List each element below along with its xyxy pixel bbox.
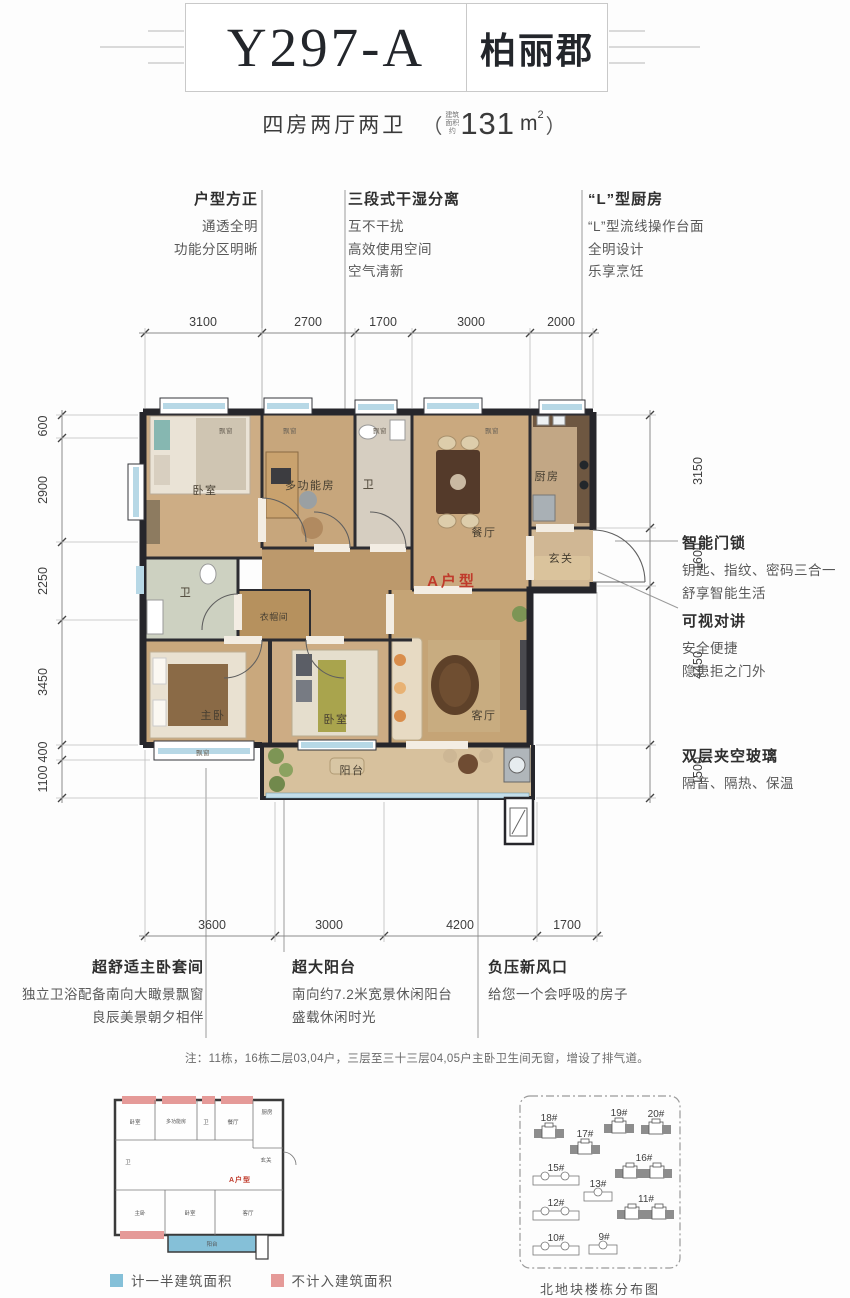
dim-top-1: 3100 xyxy=(189,315,217,329)
room-label-living: 客厅 xyxy=(472,708,497,722)
bay-window-label: 飘窗 xyxy=(219,426,233,435)
legend-swatch-pink xyxy=(271,1274,284,1287)
mini-label: 玄关 xyxy=(260,1156,272,1164)
feature-line: 盛载休闲时光 xyxy=(292,1007,477,1030)
dim-top-4: 3000 xyxy=(457,315,485,329)
feature-line: 全明设计 xyxy=(588,239,793,262)
feature-title: 可视对讲 xyxy=(682,610,850,631)
dim-bottom-3: 4200 xyxy=(446,918,474,932)
room-label-kitchen: 厨房 xyxy=(535,470,560,483)
mini-unit-tag: A户型 xyxy=(229,1175,251,1184)
dim-left-3: 2250 xyxy=(36,567,50,595)
feature-line: 空气清新 xyxy=(348,261,523,284)
utility-shaft xyxy=(505,798,533,844)
area-unit: m xyxy=(520,112,538,136)
building-label: 10# xyxy=(548,1233,565,1244)
feature-line: 安全便捷 xyxy=(682,638,850,661)
dim-left-4: 3450 xyxy=(36,668,50,696)
mini-baywindow-strip xyxy=(202,1096,215,1104)
feature-title: “L”型厨房 xyxy=(588,188,793,209)
dim-left-6: 1100 xyxy=(36,766,50,793)
mini-label: 卧室 xyxy=(184,1209,196,1217)
feature-line: 隐患拒之门外 xyxy=(682,661,850,684)
feature-title: 双层夹空玻璃 xyxy=(682,745,850,766)
layout-type: 四房两厅两卫 xyxy=(262,109,406,139)
building-label: 13# xyxy=(590,1179,607,1190)
mini-label: 卧室 xyxy=(129,1118,141,1126)
feature-title: 超舒适主卧套间 xyxy=(10,956,204,977)
legend-swatch-blue xyxy=(110,1274,123,1287)
room-label-bath-master: 卫 xyxy=(180,587,193,599)
unit-model-title: Y297-A xyxy=(186,4,466,91)
mini-label: 卫 xyxy=(203,1119,209,1126)
feature-line: 隔音、隔热、保温 xyxy=(682,773,850,796)
paren-close: ） xyxy=(546,110,566,139)
site-plan-caption: 北地块楼栋分布图 xyxy=(520,1279,680,1298)
dim-top-5: 2000 xyxy=(547,315,575,329)
feature-callout-double-glazing: 双层夹空玻璃 隔音、隔热、保温 xyxy=(682,745,850,796)
building-label: 9# xyxy=(598,1232,610,1243)
feature-callout-smart-lock: 智能门锁 钥匙、指纹、密码三合一 舒享智能生活 xyxy=(682,532,850,605)
room-label-multi: 多功能房 xyxy=(285,478,335,492)
dim-top-2: 2700 xyxy=(294,315,322,329)
footnote: 注：11栋，16栋二层03,04户，三层至三十三层04,05户主卧卫生间无窗，增… xyxy=(185,1050,649,1066)
building-label: 17# xyxy=(577,1129,594,1140)
feature-callout-master-suite: 超舒适主卧套间 独立卫浴配备南向大瞰景飘窗 良辰美景朝夕相伴 xyxy=(10,956,204,1029)
feature-callout-l-kitchen: “L”型厨房 “L”型流线操作台面 全明设计 乐享烹饪 xyxy=(588,188,793,284)
mini-plan: 卧室 多功能房 卫 餐厅 厨房 玄关 卫 A户型 主卧 卧室 客厅 阳台 xyxy=(115,1096,296,1259)
room-label-dining: 餐厅 xyxy=(472,525,497,539)
building-label: 18# xyxy=(541,1113,558,1124)
feature-line: 南向约7.2米宽景休闲阳台 xyxy=(292,984,477,1007)
project-name-badge: 柏丽郡 xyxy=(466,4,607,91)
feature-callout-fresh-air: 负压新风口 给您一个会呼吸的房子 xyxy=(488,956,668,1007)
dim-bottom-1: 3600 xyxy=(198,918,226,932)
feature-title: 负压新风口 xyxy=(488,956,668,977)
legend-item-half-area: 计一半建筑面积 xyxy=(110,1270,233,1290)
building-label: 12# xyxy=(548,1198,565,1209)
dim-left-5: 400 xyxy=(36,742,50,763)
mini-baywindow-strip xyxy=(162,1096,196,1104)
area-exponent: 2 xyxy=(538,109,544,121)
dim-left-2: 2900 xyxy=(36,476,50,504)
dim-bottom-2: 3000 xyxy=(315,918,343,932)
feature-line: 钥匙、指纹、密码三合一 xyxy=(682,560,850,583)
feature-callout-video-intercom: 可视对讲 安全便捷 隐患拒之门外 xyxy=(682,610,850,683)
mini-label: 卫 xyxy=(125,1159,131,1166)
layout-subtitle: 四房两厅两卫 （ 建筑面积约 131 m 2 ） xyxy=(0,104,830,144)
area-value: 131 xyxy=(460,106,515,142)
room-label-foyer: 玄关 xyxy=(549,551,574,565)
feature-title: 户型方正 xyxy=(68,188,258,209)
mini-baywindow-strip xyxy=(221,1096,253,1104)
building-label: 20# xyxy=(648,1109,665,1120)
dim-right-1: 3150 xyxy=(691,457,705,485)
mini-label: 主卧 xyxy=(134,1209,146,1217)
feature-line: 互不干扰 xyxy=(348,216,523,239)
dim-top-3: 1700 xyxy=(369,315,397,329)
feature-callout-wet-dry: 三段式干湿分离 互不干扰 高效使用空间 空气清新 xyxy=(348,188,523,284)
bay-window-label: 飘窗 xyxy=(196,748,210,757)
room-label-bedroom2: 卧室 xyxy=(324,712,349,726)
feature-callout-squareness: 户型方正 通透全明 功能分区明晰 xyxy=(68,188,258,261)
mini-label: 客厅 xyxy=(242,1209,254,1217)
floorplan-page: 3100 2700 1700 3000 2000 3600 3000 4200 … xyxy=(0,0,850,1298)
feature-line: 良辰美景朝夕相伴 xyxy=(10,1007,204,1030)
legend-label: 不计入建筑面积 xyxy=(292,1270,394,1290)
title-box: Y297-A 柏丽郡 xyxy=(185,3,608,92)
feature-line: 高效使用空间 xyxy=(348,239,523,262)
mini-baywindow-strip xyxy=(120,1231,164,1239)
room-label-bedroom-top: 卧室 xyxy=(193,483,218,497)
building-label: 16# xyxy=(636,1153,653,1164)
dim-left-1: 600 xyxy=(36,416,50,437)
feature-title: 智能门锁 xyxy=(682,532,850,553)
building-label: 11# xyxy=(638,1194,654,1205)
legend-label: 计一半建筑面积 xyxy=(131,1270,233,1290)
bay-window-label: 飘窗 xyxy=(485,426,499,435)
area-legend: 计一半建筑面积 不计入建筑面积 xyxy=(110,1270,393,1290)
feature-title: 超大阳台 xyxy=(292,956,477,977)
feature-line: 乐享烹饪 xyxy=(588,261,793,284)
mini-label: 多功能房 xyxy=(166,1118,186,1125)
feature-line: “L”型流线操作台面 xyxy=(588,216,793,239)
building-label: 15# xyxy=(548,1163,565,1174)
room-label-master: 主卧 xyxy=(201,709,226,722)
feature-line: 独立卫浴配备南向大瞰景飘窗 xyxy=(10,984,204,1007)
feature-line: 功能分区明晰 xyxy=(68,239,258,262)
mini-label: 阳台 xyxy=(206,1240,218,1248)
feature-callout-big-balcony: 超大阳台 南向约7.2米宽景休闲阳台 盛载休闲时光 xyxy=(292,956,477,1029)
paren-open: （ xyxy=(422,110,442,139)
area-prefix: 建筑面积约 xyxy=(444,112,460,136)
bay-window-label: 飘窗 xyxy=(373,426,387,435)
bay-window-label: 飘窗 xyxy=(283,426,297,435)
mini-baywindow-strip xyxy=(122,1096,156,1104)
mini-label: 厨房 xyxy=(261,1108,273,1116)
building-label: 19# xyxy=(611,1108,628,1119)
room-label-balcony: 阳台 xyxy=(340,763,365,777)
dim-bottom-4: 1700 xyxy=(553,918,581,932)
feature-line: 通透全明 xyxy=(68,216,258,239)
room-label-closet: 衣帽间 xyxy=(260,611,289,622)
unit-tag-label: A户型 xyxy=(427,572,477,590)
feature-line: 舒享智能生活 xyxy=(682,583,850,606)
mini-label: 餐厅 xyxy=(227,1118,239,1126)
room-label-bath-top: 卫 xyxy=(363,479,376,491)
site-plan: 18# 17# 19# 20# 15# 16# 13# 12# 11# 10# … xyxy=(520,1096,680,1268)
legend-item-excluded-area: 不计入建筑面积 xyxy=(271,1270,394,1290)
feature-title: 三段式干湿分离 xyxy=(348,188,523,209)
feature-line: 给您一个会呼吸的房子 xyxy=(488,984,668,1007)
